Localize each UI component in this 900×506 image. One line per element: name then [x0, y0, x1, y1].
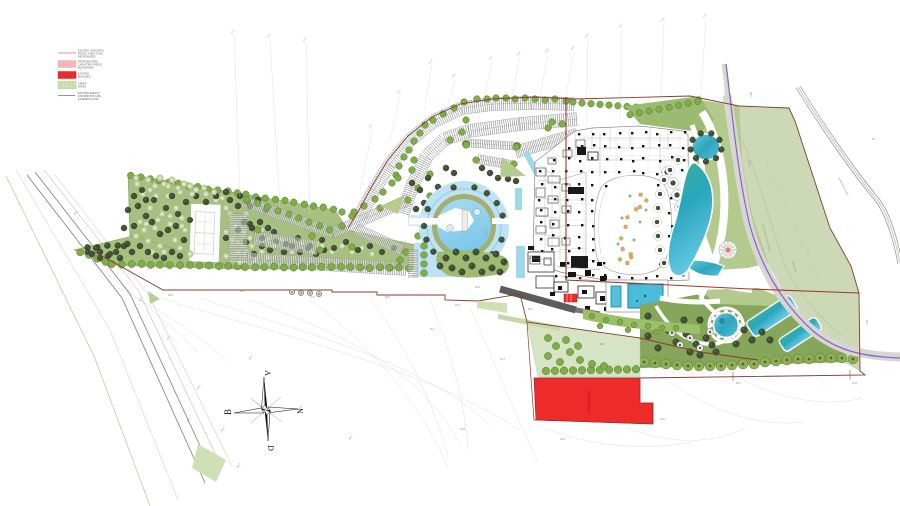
svg-text:POOL: POOL — [486, 229, 488, 236]
svg-text:44.0: 44.0 — [584, 32, 590, 38]
svg-text:N: N — [296, 408, 305, 414]
svg-text:39.0: 39.0 — [749, 92, 752, 97]
svg-text:44.8: 44.8 — [460, 428, 465, 431]
svg-text:AREAS: AREAS — [78, 86, 87, 89]
svg-text:41.5: 41.5 — [266, 32, 272, 38]
svg-text:PROPOSED PARCEL: PROPOSED PARCEL — [587, 390, 590, 414]
svg-text:40.1: 40.1 — [73, 209, 79, 215]
svg-text:45.9: 45.9 — [455, 304, 460, 307]
svg-text:43.9: 43.9 — [560, 438, 565, 441]
svg-text:41.8: 41.8 — [302, 36, 308, 42]
svg-text:42.1: 42.1 — [368, 122, 374, 128]
svg-text:42.5: 42.5 — [396, 88, 402, 94]
svg-text:44.8: 44.8 — [702, 12, 708, 18]
svg-text:43.2: 43.2 — [690, 356, 695, 359]
svg-text:40.2: 40.2 — [865, 320, 868, 325]
svg-text:D: D — [266, 445, 275, 451]
svg-text:44.0: 44.0 — [600, 343, 605, 346]
svg-text:44.5: 44.5 — [660, 16, 666, 22]
svg-text:42.6: 42.6 — [736, 382, 741, 385]
svg-text:B: B — [223, 409, 233, 415]
svg-text:43.0: 43.0 — [660, 418, 665, 421]
svg-text:49.5: 49.5 — [168, 294, 173, 297]
svg-text:46.0: 46.0 — [248, 354, 253, 360]
svg-text:48.0: 48.0 — [240, 290, 245, 293]
svg-text:44.6: 44.6 — [196, 384, 202, 390]
svg-text:41.8: 41.8 — [852, 382, 857, 385]
svg-text:38: 38 — [872, 138, 875, 141]
svg-text:46.4: 46.4 — [236, 462, 242, 468]
svg-text:42.9: 42.9 — [451, 72, 457, 78]
svg-text:45.8: 45.8 — [220, 426, 226, 432]
svg-text:44.7: 44.7 — [500, 358, 505, 361]
svg-text:43.6: 43.6 — [544, 47, 550, 53]
svg-text:45.2: 45.2 — [348, 434, 353, 440]
svg-text:47.2: 47.2 — [310, 296, 315, 299]
svg-text:BUILDINGS: BUILDINGS — [78, 76, 91, 79]
svg-text:A: A — [263, 370, 272, 376]
svg-text:EXISTING ROAD: EXISTING ROAD — [837, 177, 849, 196]
svg-text:41.2: 41.2 — [230, 28, 236, 34]
svg-text:42.8: 42.8 — [428, 58, 434, 64]
svg-text:45.1: 45.1 — [430, 328, 435, 331]
svg-text:BOUNDARIES: BOUNDARIES — [78, 67, 94, 70]
svg-text:43.1: 43.1 — [488, 54, 494, 60]
svg-text:EASEMENT ZONE: EASEMENT ZONE — [78, 98, 99, 101]
svg-text:46.1: 46.1 — [528, 308, 533, 311]
svg-text:43.1: 43.1 — [166, 334, 172, 340]
svg-text:44.2: 44.2 — [618, 22, 624, 28]
svg-text:43.4: 43.4 — [516, 50, 522, 56]
svg-text:45.5: 45.5 — [475, 286, 480, 289]
svg-text:46.8: 46.8 — [385, 296, 390, 299]
svg-text:REORGANIZED: REORGANIZED — [78, 56, 96, 59]
svg-text:43.9: 43.9 — [570, 44, 576, 50]
